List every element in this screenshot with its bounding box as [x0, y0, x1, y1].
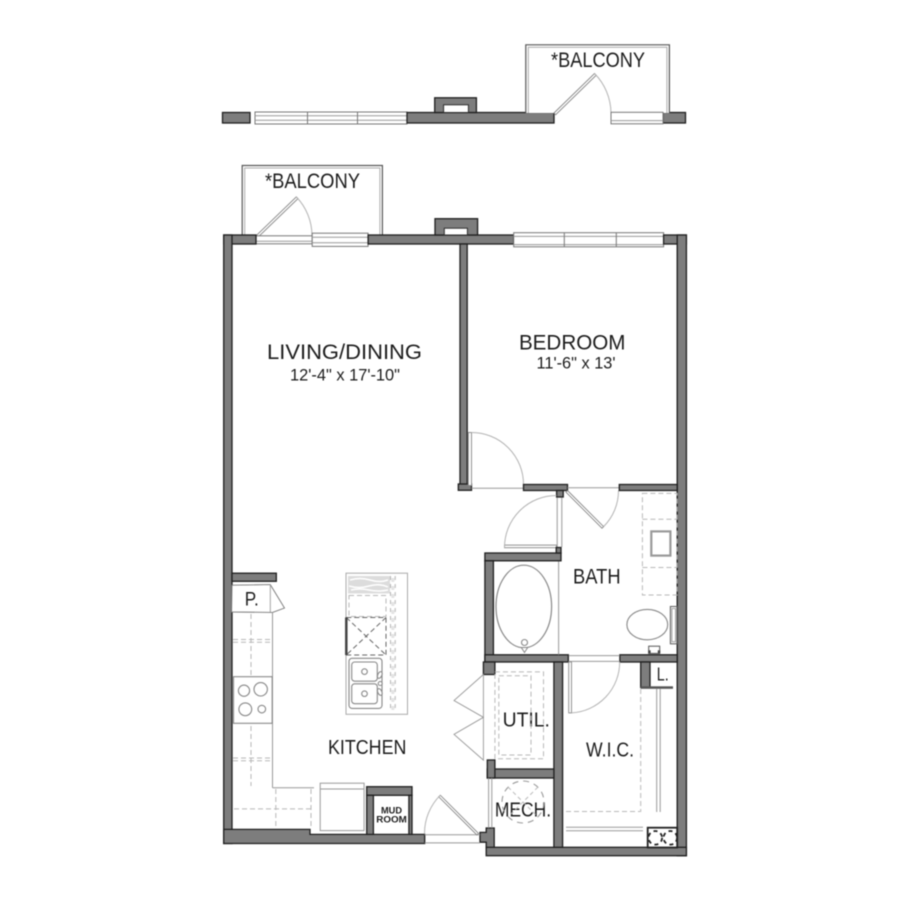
svg-text:BATH: BATH: [573, 566, 621, 589]
svg-text:KITCHEN: KITCHEN: [328, 737, 406, 759]
svg-text:*BALCONY: *BALCONY: [265, 170, 360, 193]
svg-text:P.: P.: [245, 589, 259, 610]
svg-text:W.I.C.: W.I.C.: [586, 740, 634, 762]
svg-text:UTIL.: UTIL.: [503, 710, 550, 732]
svg-text:BEDROOM: BEDROOM: [519, 332, 626, 355]
svg-text:LIVING/DINING: LIVING/DINING: [267, 341, 422, 364]
svg-text:12'-4" x 17'-10": 12'-4" x 17'-10": [290, 367, 400, 385]
svg-text:L.: L.: [657, 665, 669, 685]
svg-text:11'-6" x 13': 11'-6" x 13': [537, 355, 616, 373]
svg-text:ROOM: ROOM: [376, 815, 407, 825]
svg-text:*BALCONY: *BALCONY: [551, 49, 645, 72]
